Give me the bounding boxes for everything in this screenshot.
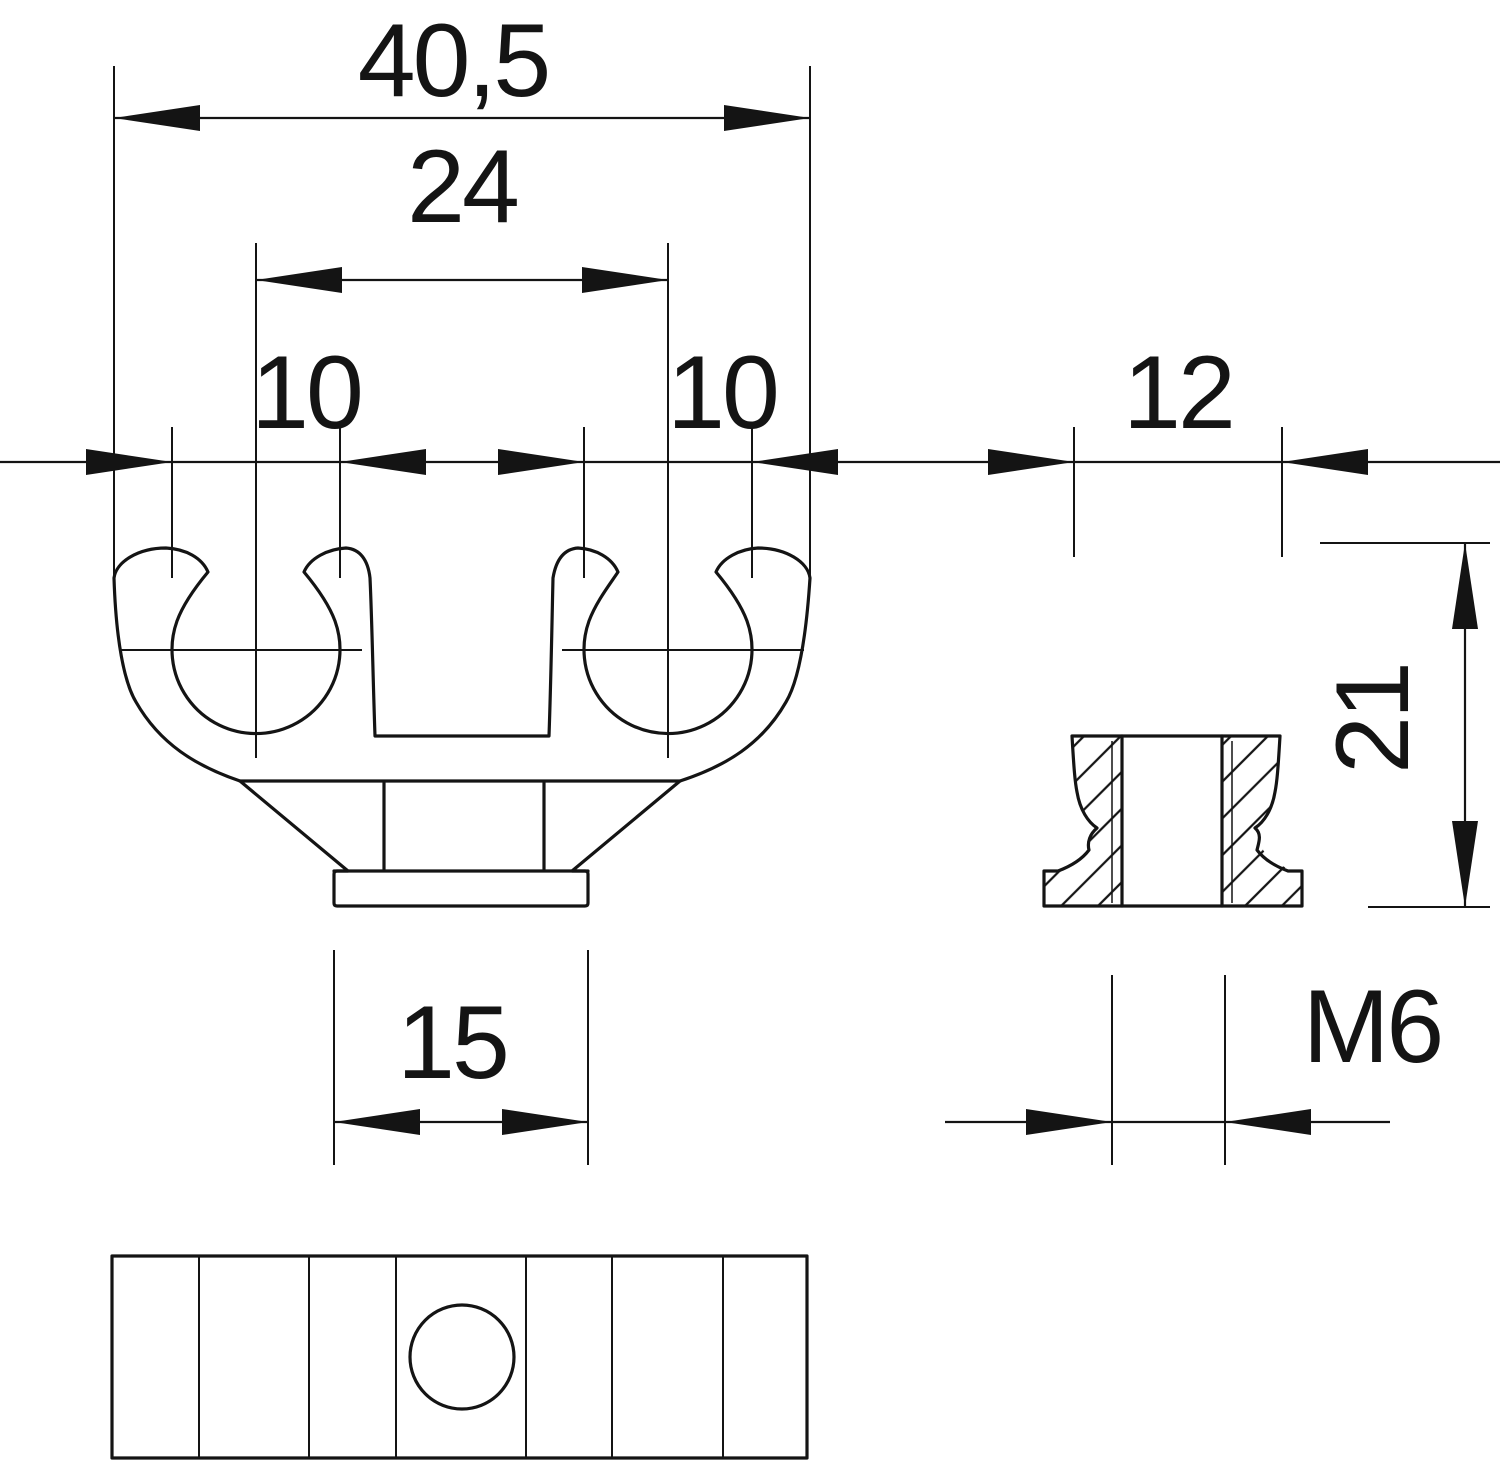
arrow-left-icon	[340, 449, 426, 475]
drawing-canvas: 40,5 24 10 10 12	[0, 0, 1500, 1465]
dim-clip-spacing: 24	[256, 129, 668, 293]
bottom-view	[112, 1256, 807, 1458]
arrow-right-icon	[1026, 1109, 1112, 1135]
dim-bore-right-label: 10	[667, 335, 777, 451]
dim-thread: M6	[945, 969, 1441, 1165]
centerline-right-clip	[562, 243, 804, 758]
arrow-left-icon	[752, 449, 838, 475]
arrow-left-icon	[256, 267, 342, 293]
section-hatch-left	[1044, 736, 1122, 906]
arrow-right-icon	[724, 105, 810, 131]
dim-foot-width-label: 15	[397, 985, 507, 1101]
arrow-right-icon	[498, 449, 584, 475]
dim-thread-label: M6	[1303, 969, 1441, 1085]
bottom-view-outline	[112, 1256, 807, 1458]
dim-clip-spacing-label: 24	[407, 129, 517, 245]
arrow-left-icon	[1282, 449, 1368, 475]
clamp-silhouette	[114, 548, 810, 906]
dim-bore-left-label: 10	[251, 335, 361, 451]
arrow-left-icon	[334, 1109, 420, 1135]
cap-outline	[1072, 545, 1280, 736]
arrow-left-icon	[114, 105, 200, 131]
technical-drawing: 40,5 24 10 10 12	[0, 0, 1500, 1465]
arrow-right-icon	[582, 267, 668, 293]
dim-side-width: 12	[988, 335, 1368, 557]
arrow-right-icon	[86, 449, 172, 475]
dim-overall-width-label: 40,5	[358, 3, 548, 119]
arrow-up-icon	[1452, 543, 1478, 629]
dim-height: 21	[1315, 543, 1490, 907]
arrow-right-icon	[988, 449, 1074, 475]
arrow-down-icon	[1452, 821, 1478, 907]
arrow-right-icon	[502, 1109, 588, 1135]
dim-side-width-label: 12	[1123, 335, 1233, 451]
dim-height-label: 21	[1315, 664, 1431, 774]
arrow-left-icon	[1225, 1109, 1311, 1135]
centerline-left-clip	[120, 243, 362, 758]
dim-foot-width: 15	[334, 950, 588, 1165]
dim-overall-width: 40,5	[114, 3, 810, 578]
side-view	[1044, 545, 1302, 906]
thread-hole	[410, 1305, 514, 1409]
